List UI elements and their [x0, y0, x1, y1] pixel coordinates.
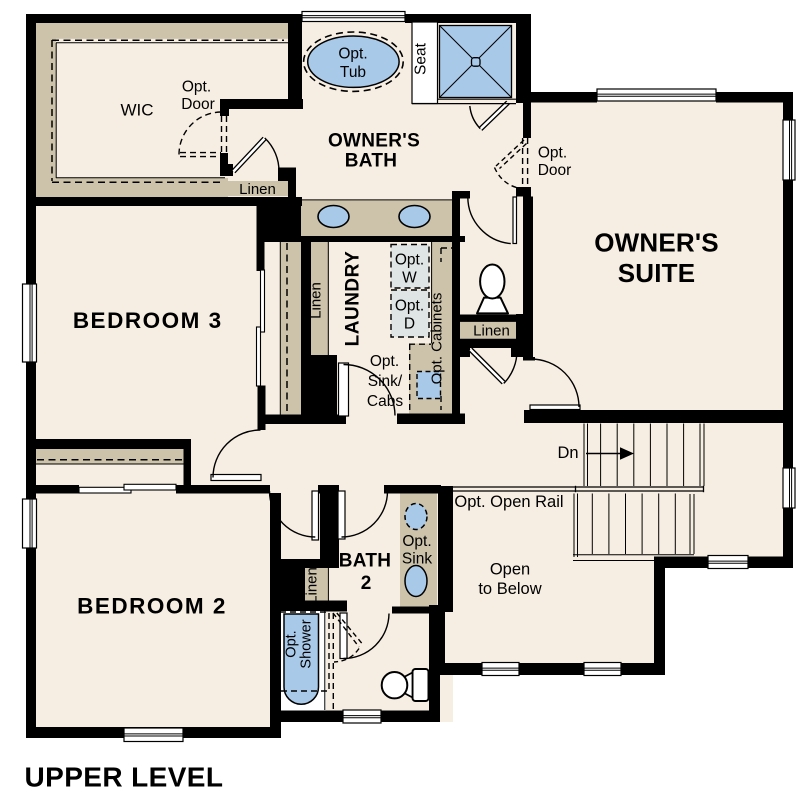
svg-text:D: D [404, 316, 415, 333]
svg-text:Opt. Open Rail: Opt. Open Rail [454, 493, 563, 511]
svg-text:BEDROOM 2: BEDROOM 2 [77, 594, 227, 619]
svg-text:OWNER'S: OWNER'S [594, 228, 719, 258]
svg-text:W: W [402, 270, 417, 287]
svg-text:OWNER'S: OWNER'S [328, 130, 420, 151]
svg-text:Door: Door [181, 96, 215, 113]
svg-text:Door: Door [538, 162, 572, 179]
svg-text:Opt.: Opt. [395, 298, 424, 315]
svg-text:Opt.: Opt. [395, 252, 424, 269]
svg-text:Opt.: Opt. [538, 145, 567, 162]
svg-text:to Below: to Below [478, 580, 541, 598]
svg-text:Opt.: Opt. [370, 353, 399, 370]
svg-text:Sink/: Sink/ [368, 373, 403, 390]
svg-text:WIC: WIC [120, 101, 153, 120]
svg-text:Linen: Linen [304, 567, 321, 604]
svg-text:Linen: Linen [308, 282, 325, 319]
svg-text:BEDROOM 3: BEDROOM 3 [73, 308, 223, 333]
svg-text:Open: Open [490, 561, 530, 579]
svg-text:Linen: Linen [473, 323, 510, 340]
svg-text:Opt.: Opt. [338, 45, 367, 62]
svg-text:Tub: Tub [340, 64, 366, 81]
svg-text:UPPER LEVEL: UPPER LEVEL [25, 762, 224, 793]
svg-text:2: 2 [361, 573, 372, 594]
svg-text:Cabs: Cabs [367, 393, 403, 410]
svg-text:BATH: BATH [345, 150, 398, 171]
svg-text:Seat: Seat [412, 42, 429, 75]
svg-text:Opt. Cabinets: Opt. Cabinets [429, 293, 446, 385]
svg-text:Opt.: Opt. [284, 630, 300, 657]
svg-text:Opt.: Opt. [402, 533, 431, 550]
svg-text:Sink: Sink [402, 551, 432, 568]
svg-text:BATH: BATH [339, 551, 392, 572]
svg-text:Shower: Shower [299, 619, 315, 668]
svg-text:Opt.: Opt. [182, 79, 211, 96]
svg-text:SUITE: SUITE [618, 258, 696, 288]
svg-text:Linen: Linen [239, 181, 276, 198]
svg-text:Dn: Dn [557, 444, 578, 462]
svg-text:LAUNDRY: LAUNDRY [343, 251, 364, 347]
